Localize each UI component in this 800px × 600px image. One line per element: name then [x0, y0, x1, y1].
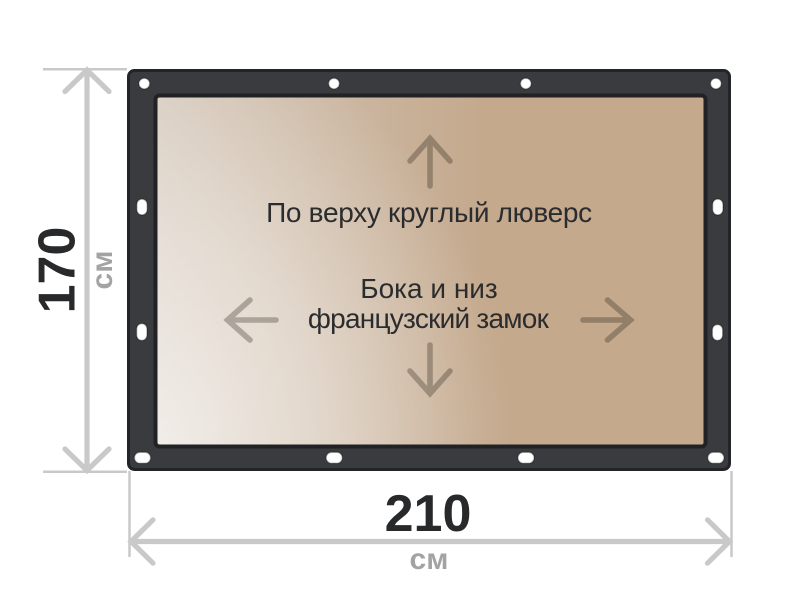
svg-text:см: см	[86, 251, 119, 290]
svg-text:170: 170	[29, 227, 87, 314]
svg-text:французский замок: французский замок	[308, 303, 550, 334]
svg-text:Бока и низ: Бока и низ	[360, 273, 498, 304]
svg-text:210: 210	[385, 485, 472, 543]
svg-text:см: см	[410, 543, 449, 576]
svg-text:По верху круглый люверс: По верху круглый люверс	[266, 197, 592, 228]
